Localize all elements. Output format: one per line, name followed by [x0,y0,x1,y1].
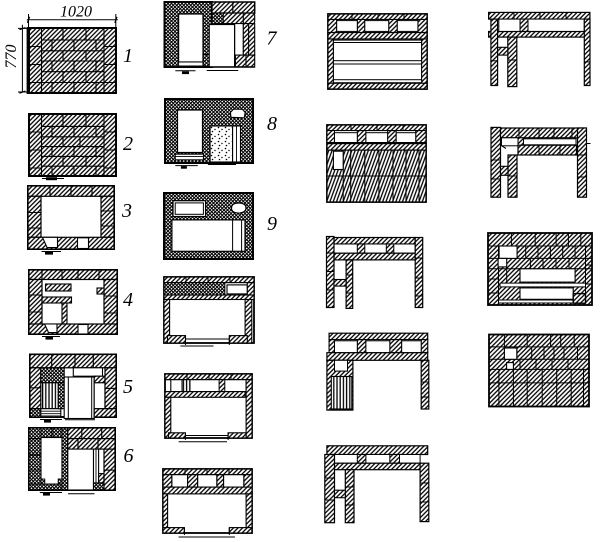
svg-text:8: 8 [267,113,277,135]
svg-text:9: 9 [267,213,277,235]
svg-text:7: 7 [267,28,278,50]
svg-text:1: 1 [123,45,133,67]
svg-text:5: 5 [123,376,133,398]
svg-text:6: 6 [124,445,134,467]
svg-text:770: 770 [3,45,20,69]
svg-text:1020: 1020 [60,4,92,21]
svg-text:3: 3 [121,200,132,222]
svg-text:2: 2 [123,133,133,155]
svg-text:4: 4 [123,289,133,311]
